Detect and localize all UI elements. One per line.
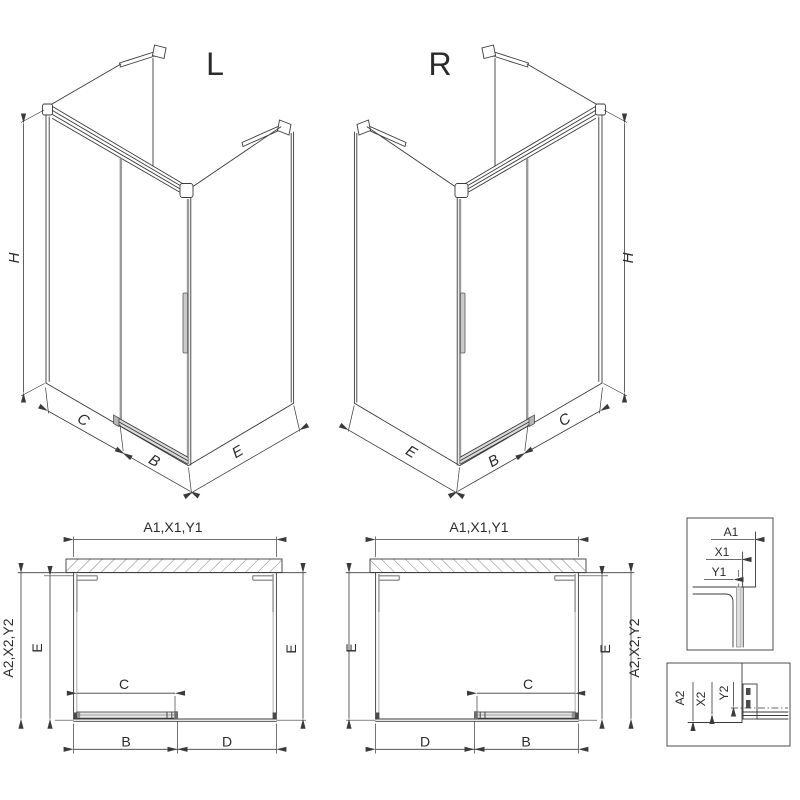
iso-view-left: L H C B E (6, 45, 300, 494)
plan-right-geometry (346, 537, 634, 754)
dim-label-door-left: B (146, 451, 163, 471)
plan-right-fixed-label: D (420, 734, 430, 750)
technical-drawing-canvas: L H C B E R H C B E A1,X1,Y1 A2,X2,Y2 E … (0, 0, 800, 800)
plan-left-opening-label: C (119, 676, 129, 692)
detail-y1-label: Y1 (712, 565, 727, 579)
detail-y2-label: Y2 (717, 685, 731, 700)
detail-a2-label: A2 (673, 690, 687, 705)
dim-label-side-right: E (403, 442, 421, 462)
detail-glass-section (736, 587, 741, 647)
iso-left-title: L (206, 46, 224, 82)
drawing-sheet: L H C B E R H C B E A1,X1,Y1 A2,X2,Y2 E … (0, 0, 800, 800)
plan-left-geometry (18, 537, 306, 754)
detail-x2-label: X2 (694, 691, 708, 706)
plan-right-door-label: B (521, 734, 530, 750)
plan-left-inner-left-label: E (29, 643, 45, 652)
iso-left-geometry (21, 45, 300, 494)
detail-a1-label: A1 (724, 525, 739, 539)
iso-right-geometry (348, 45, 627, 494)
plan-right-width-label: A1,X1,Y1 (449, 519, 508, 535)
plan-right-depth-label: A2,X2,Y2 (626, 618, 642, 677)
plan-left-door-label: B (121, 734, 130, 750)
detail-view-top: A1 X1 Y1 (687, 518, 773, 650)
iso-view-right: R H C B E (348, 45, 637, 494)
detail-x1-label: X1 (715, 545, 730, 559)
plan-left-width-label: A1,X1,Y1 (143, 519, 202, 535)
plan-right-inner-left-label: E (343, 643, 359, 652)
plan-left-inner-right-label: E (283, 644, 299, 653)
plan-left-depth-label: A2,X2,Y2 (0, 618, 16, 677)
iso-right-title: R (428, 46, 451, 82)
dim-label-door-right: B (485, 451, 502, 471)
plan-left-fixed-label: D (222, 734, 232, 750)
plan-view-left: A1,X1,Y1 A2,X2,Y2 E E C B D (0, 519, 306, 754)
plan-right-opening-label: C (523, 676, 533, 692)
dim-label-height-left: H (6, 252, 23, 263)
plan-view-right: A1,X1,Y1 A2,X2,Y2 E E C D B (343, 519, 642, 754)
detail-roller (746, 700, 751, 708)
dim-label-side-left: E (229, 442, 247, 462)
dim-label-height-right: H (620, 252, 637, 263)
detail-roller (746, 688, 751, 695)
detail-view-bottom: A2 X2 Y2 (667, 663, 790, 746)
plan-right-inner-right-label: E (597, 644, 613, 653)
